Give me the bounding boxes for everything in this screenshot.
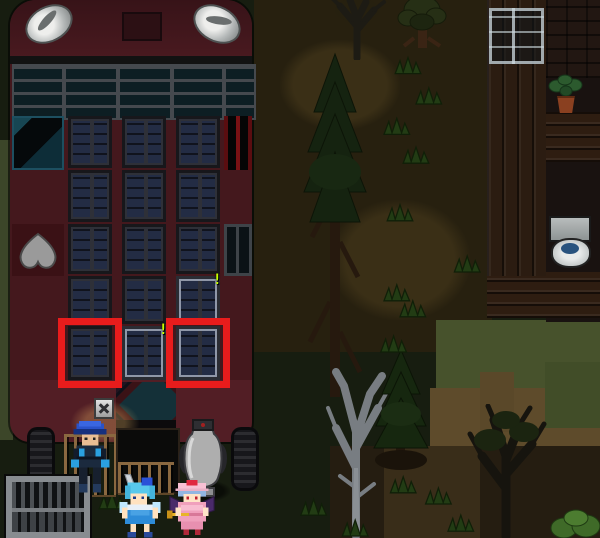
bus-window-r4c2 (122, 276, 166, 324)
bus-divider-band (10, 56, 252, 64)
red-highlight-box-left[interactable] (58, 318, 122, 388)
heart-tile (12, 224, 64, 276)
windshield-panel (172, 64, 224, 120)
sign-with-x[interactable] (94, 398, 114, 419)
wheel-right (231, 427, 259, 491)
bus-window-r2c1 (68, 170, 112, 222)
bus-window-r3c1 (68, 224, 112, 274)
character-blue-haired-girl[interactable] (114, 474, 166, 538)
character-guard[interactable] (68, 420, 112, 496)
bus-window-r1c2 (122, 116, 166, 168)
bus-window-r3c2 (122, 224, 166, 274)
game-viewport: ! ! (0, 0, 600, 538)
window-alert-icon[interactable]: ! (213, 274, 221, 286)
windshield-panel (224, 64, 256, 120)
windshield-panel (64, 64, 118, 120)
emblem-flag-tile (12, 116, 64, 170)
black-panel (224, 224, 252, 276)
bus-window-r1c3 (176, 116, 220, 168)
windshield-panel (12, 64, 64, 120)
windshield-panel (118, 64, 172, 120)
bus-window-r1c1 (68, 116, 112, 168)
window-alert-icon[interactable]: ! (159, 324, 167, 336)
bus-window-r4c1 (68, 276, 112, 324)
bus-window-r3c3 (176, 224, 220, 274)
roof-hatch (122, 12, 162, 41)
bus-window-r2c3 (176, 170, 220, 222)
red-highlight-box-right[interactable] (166, 318, 230, 388)
bus-window-r2c2 (122, 170, 166, 222)
red-black-panel (224, 116, 252, 170)
character-pink-dressed-girl[interactable] (167, 480, 217, 538)
